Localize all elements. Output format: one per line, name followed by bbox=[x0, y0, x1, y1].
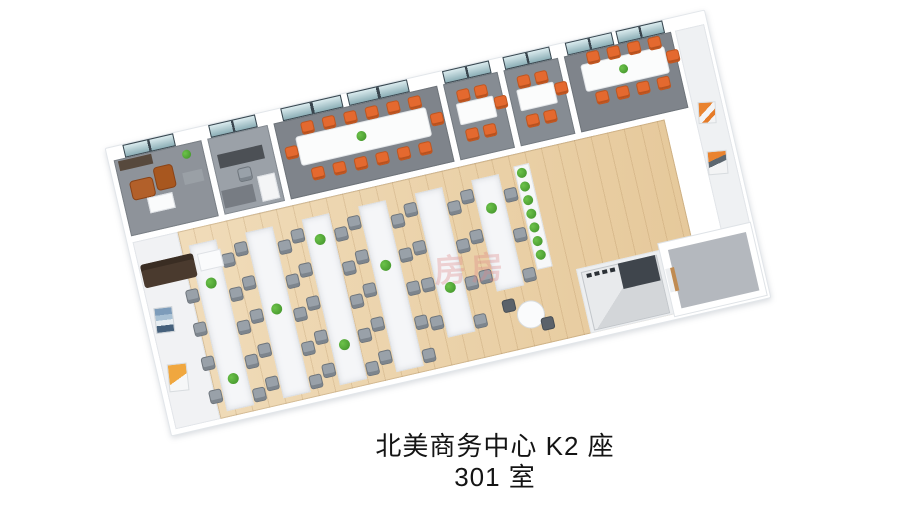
office-chair bbox=[421, 347, 437, 364]
office-chair bbox=[233, 241, 249, 258]
office-chair bbox=[228, 285, 244, 302]
office-chair bbox=[473, 313, 489, 330]
office-chair bbox=[321, 362, 337, 379]
caption-line1: 北美商务中心 K2 座 bbox=[90, 431, 900, 462]
office-chair bbox=[354, 248, 370, 265]
watermark: 房房 bbox=[432, 241, 509, 292]
office-chair bbox=[413, 314, 429, 331]
office-chair bbox=[293, 306, 309, 323]
office-chair bbox=[264, 375, 280, 392]
office-chair bbox=[290, 228, 306, 245]
office-chair bbox=[236, 319, 252, 336]
office-chair bbox=[285, 272, 301, 289]
office-chair bbox=[346, 215, 362, 232]
office-chair bbox=[200, 355, 216, 372]
office-chair bbox=[429, 315, 445, 332]
artwork-stripes bbox=[153, 306, 175, 334]
office-chair bbox=[403, 201, 419, 218]
office-chair bbox=[208, 388, 224, 405]
office-chair bbox=[362, 282, 378, 299]
artwork-orange-gray bbox=[707, 150, 729, 176]
office-chair bbox=[252, 386, 268, 403]
artwork-orange bbox=[698, 101, 717, 124]
office-chair bbox=[249, 308, 265, 325]
office-chair bbox=[305, 295, 321, 312]
office-chair bbox=[349, 293, 365, 310]
building-k2-301 bbox=[105, 10, 772, 437]
office-chair bbox=[192, 321, 208, 338]
office-chair bbox=[341, 259, 357, 276]
office-chair bbox=[357, 327, 373, 344]
office-chair bbox=[459, 188, 475, 205]
floorplan-image: 房房 北美商务中心 K2 座 301 室 bbox=[0, 0, 900, 505]
office-chair bbox=[412, 239, 428, 256]
office-chair bbox=[398, 246, 414, 263]
office-chair bbox=[365, 360, 381, 377]
office-chair bbox=[406, 280, 422, 297]
office-chair bbox=[185, 287, 201, 304]
office-chair bbox=[308, 373, 324, 390]
office-chair bbox=[334, 226, 350, 243]
office-chair bbox=[447, 200, 463, 217]
office-chair bbox=[300, 340, 316, 357]
office-chair bbox=[370, 315, 386, 332]
office-chair bbox=[277, 239, 293, 256]
office-chair bbox=[503, 187, 519, 204]
office-chair bbox=[241, 274, 257, 291]
artwork-orange bbox=[167, 362, 190, 392]
caption: 北美商务中心 K2 座 301 室 bbox=[90, 431, 900, 493]
office-chair bbox=[244, 353, 260, 370]
caption-line2: 301 室 bbox=[90, 462, 900, 493]
office-chair bbox=[257, 341, 273, 358]
office-chair bbox=[522, 266, 538, 283]
office-chair bbox=[298, 261, 314, 278]
office-chair bbox=[390, 213, 406, 230]
office-chair bbox=[512, 227, 528, 244]
office-chair bbox=[313, 328, 329, 345]
office-chair bbox=[377, 349, 393, 366]
